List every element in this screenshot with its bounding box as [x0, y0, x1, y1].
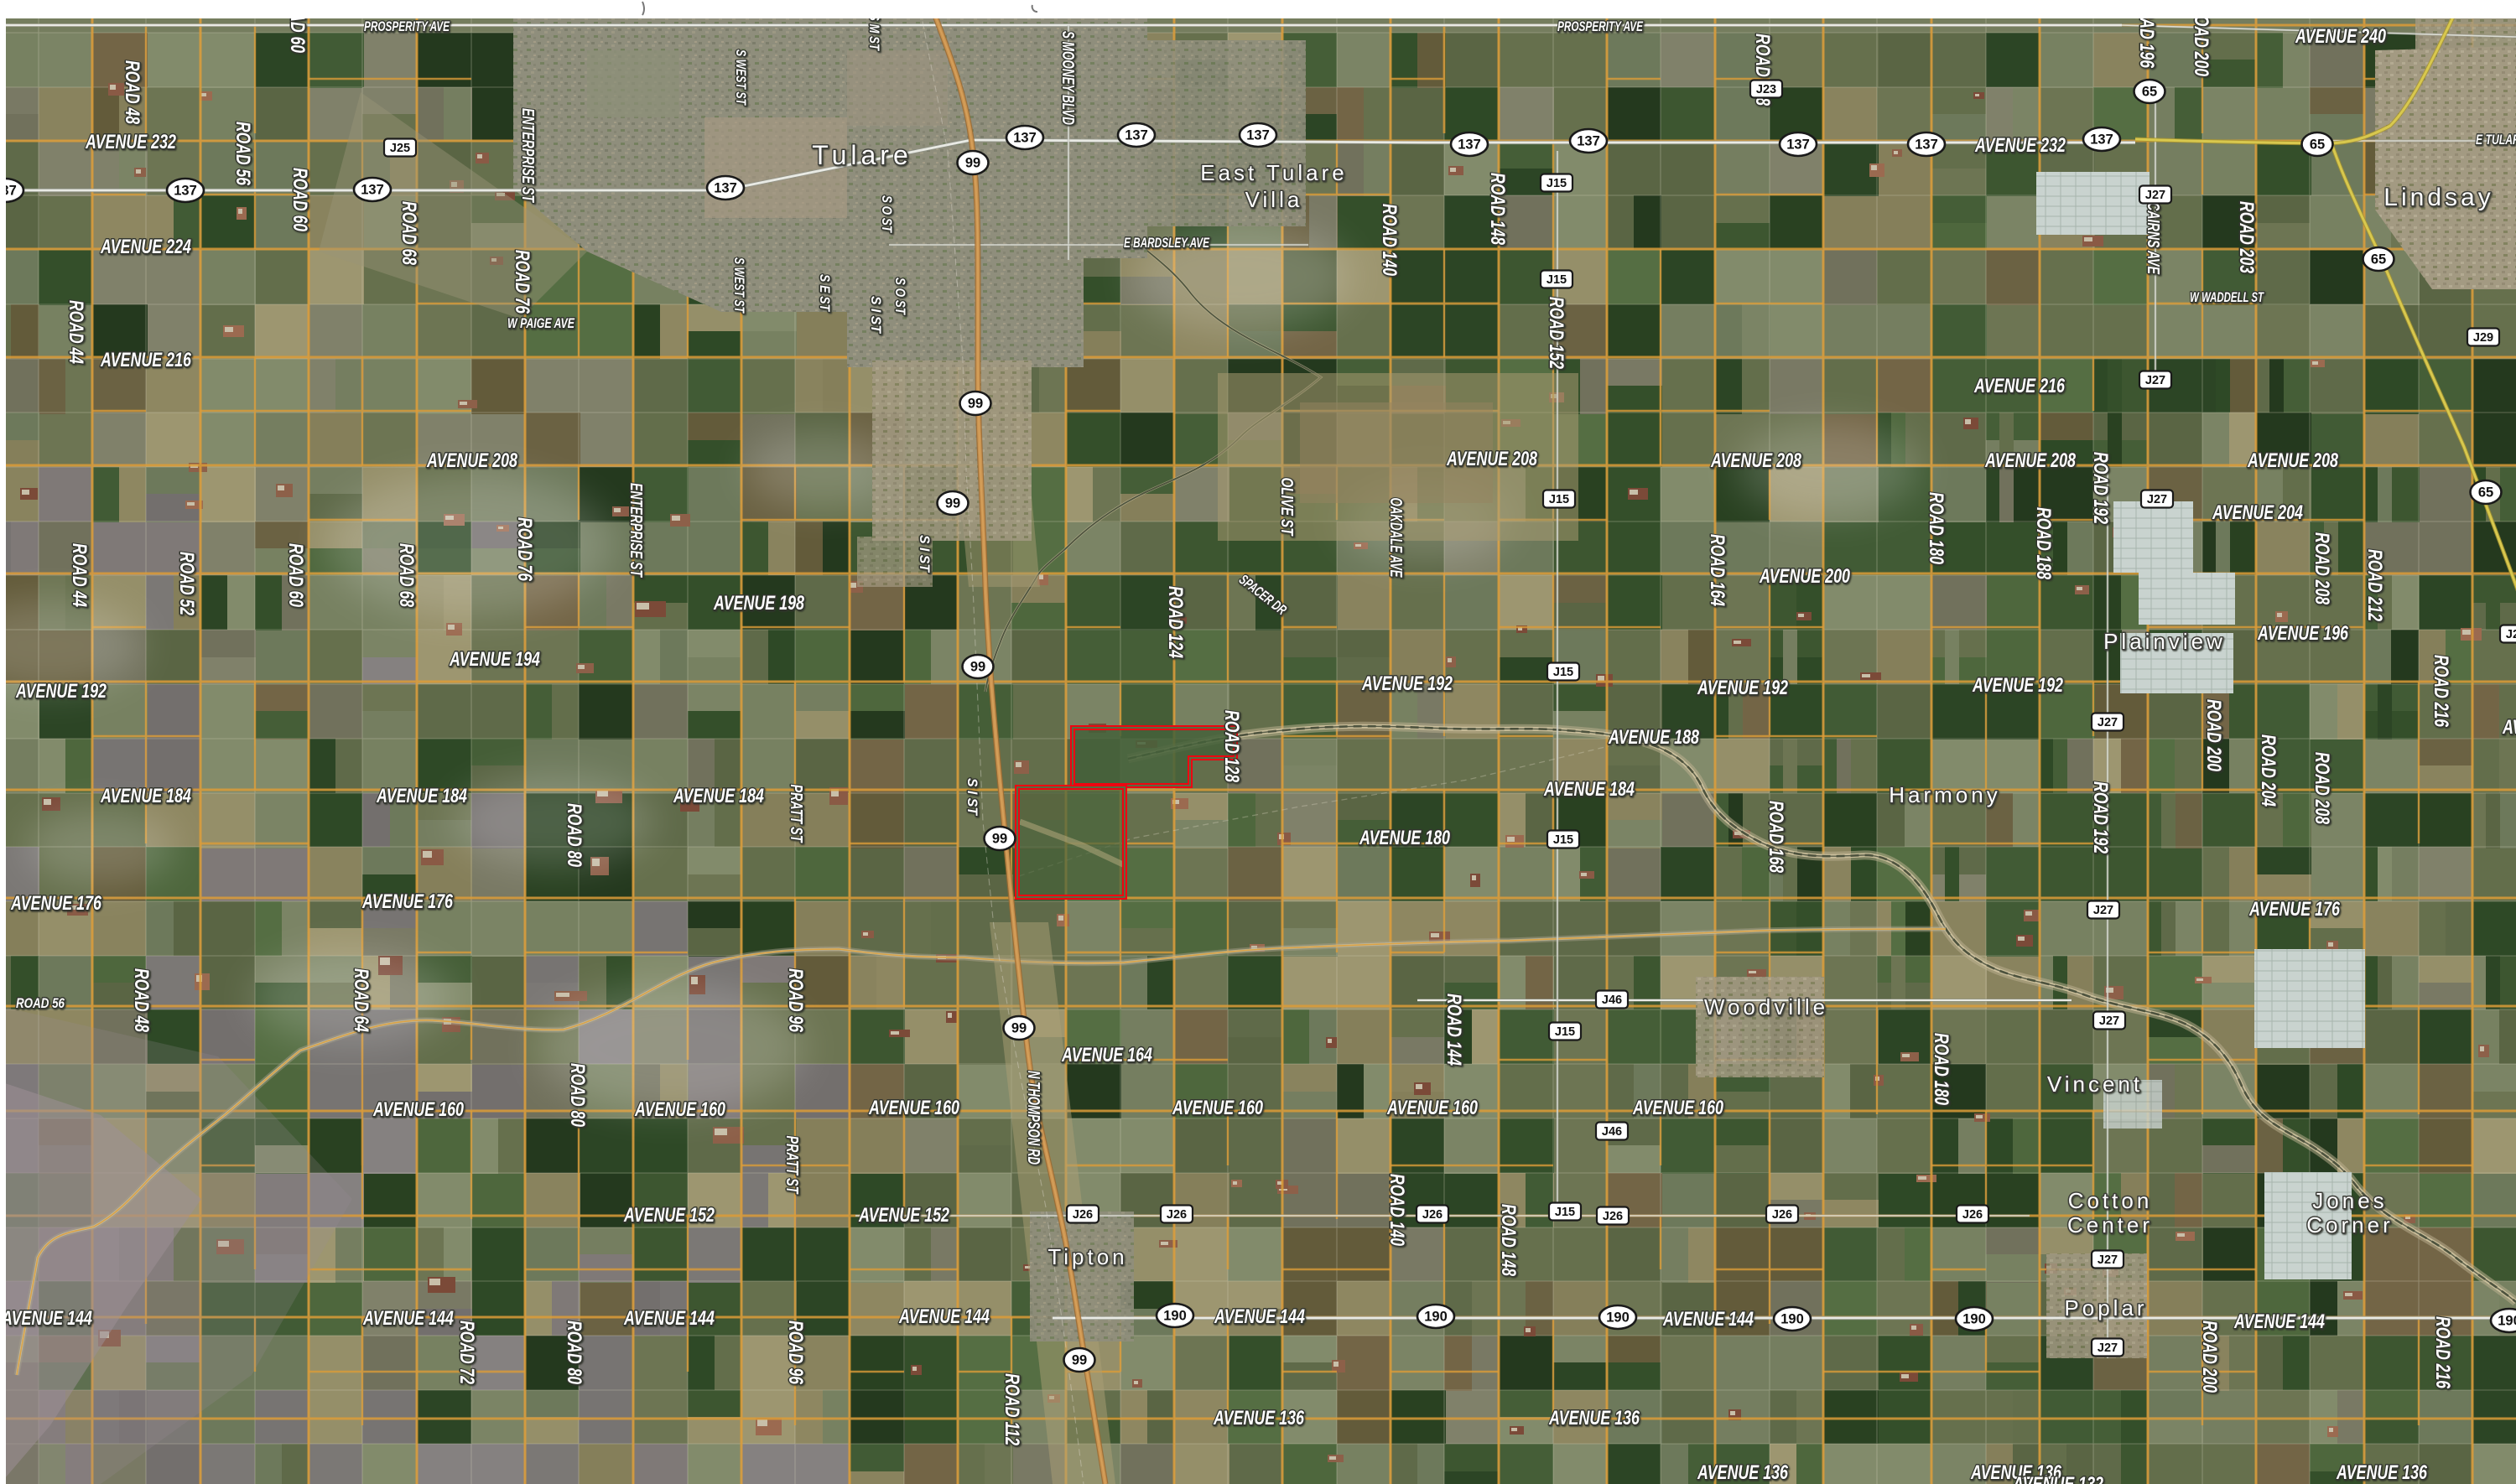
svg-text:65: 65: [2371, 252, 2386, 267]
svg-text:Vincent: Vincent: [2047, 1071, 2143, 1097]
svg-text:ROAD 180: ROAD 180: [1925, 492, 1947, 564]
svg-text:ROAD 216: ROAD 216: [2430, 655, 2452, 727]
svg-text:99: 99: [970, 660, 985, 675]
svg-text:ROAD 192: ROAD 192: [2089, 452, 2112, 524]
svg-text:ROAD 112: ROAD 112: [1001, 1373, 1023, 1445]
svg-text:AVENUE 192: AVENUE 192: [1697, 677, 1788, 699]
svg-text:J29: J29: [2473, 331, 2493, 345]
svg-text:ROAD 76: ROAD 76: [513, 517, 536, 581]
svg-text:AVENUE 176: AVENUE 176: [10, 892, 101, 915]
svg-text:137: 137: [2090, 132, 2113, 148]
svg-text:190: 190: [1163, 1309, 1187, 1324]
svg-text:Woodville: Woodville: [1704, 994, 1828, 1020]
svg-text:AVENUE 176: AVENUE 176: [361, 890, 453, 913]
svg-text:AVENUE 136: AVENUE 136: [1548, 1407, 1640, 1430]
svg-text:J27: J27: [2098, 716, 2118, 729]
svg-text:Lindsay: Lindsay: [2383, 184, 2493, 211]
svg-text:ROAD 80: ROAD 80: [566, 1063, 589, 1127]
svg-text:J26: J26: [1167, 1208, 1187, 1222]
svg-text:AVENUE 144: AVENUE 144: [898, 1305, 990, 1328]
svg-text:J26: J26: [1603, 1210, 1623, 1223]
svg-text:ROAD 192: ROAD 192: [2089, 781, 2112, 854]
svg-text:ENTERPRISE ST: ENTERPRISE ST: [518, 108, 537, 203]
svg-text:ROAD 212: ROAD 212: [2363, 549, 2386, 621]
svg-text:S WEST ST: S WEST ST: [733, 49, 749, 106]
svg-text:AVENUE 160: AVENUE 160: [634, 1098, 725, 1121]
svg-text:ROAD 48: ROAD 48: [130, 968, 153, 1032]
svg-text:CAIRNS AVE: CAIRNS AVE: [2144, 202, 2162, 274]
svg-text:ROAD 72: ROAD 72: [455, 1321, 478, 1384]
svg-text:Plainview: Plainview: [2103, 629, 2226, 654]
svg-text:65: 65: [2478, 485, 2493, 501]
svg-text:AVENUE 184: AVENUE 184: [1543, 778, 1635, 801]
svg-text:AVENUE 208: AVENUE 208: [426, 449, 517, 472]
svg-text:ROAD 200: ROAD 200: [2198, 1321, 2221, 1393]
svg-text:AVENUE 180: AVENUE 180: [1359, 827, 1450, 849]
svg-text:190: 190: [1780, 1312, 1804, 1327]
svg-text:ROAD 180: ROAD 180: [1930, 1033, 1952, 1105]
svg-text:AVENUE 194: AVENUE 194: [449, 648, 540, 671]
svg-text:Center: Center: [2067, 1212, 2153, 1238]
svg-text:AVENUE 160: AVENUE 160: [1172, 1097, 1263, 1119]
svg-text:East Tulare: East Tulare: [1200, 160, 1348, 185]
svg-text:ROAD 148: ROAD 148: [1497, 1204, 1520, 1276]
svg-text:J15: J15: [1549, 493, 1569, 506]
svg-text:AVENUE 164: AVENUE 164: [1061, 1044, 1152, 1066]
svg-text:ROAD 52: ROAD 52: [175, 552, 198, 615]
svg-text:AVENUE 224: AVENUE 224: [100, 236, 191, 258]
svg-text:S E ST: S E ST: [817, 274, 833, 312]
svg-text:Tulare: Tulare: [812, 140, 912, 170]
svg-text:S MOONEY BLVD: S MOONEY BLVD: [1058, 31, 1077, 125]
svg-text:AVENUE 192: AVENUE 192: [15, 680, 107, 703]
svg-text:AVENUE 208: AVENUE 208: [1710, 449, 1801, 472]
svg-text:137: 137: [1577, 134, 1600, 149]
svg-text:J27: J27: [2099, 1014, 2119, 1028]
svg-text:J26: J26: [1073, 1208, 1093, 1222]
svg-text:J29: J29: [2506, 628, 2516, 641]
svg-text:AVENUE 196: AVENUE 196: [2257, 622, 2348, 645]
svg-text:J27: J27: [2145, 374, 2165, 387]
svg-text:137: 137: [1458, 138, 1481, 153]
svg-text:J15: J15: [1547, 177, 1567, 190]
svg-text:ROAD 96: ROAD 96: [784, 1321, 807, 1384]
svg-text:AVENUE 160: AVENUE 160: [372, 1098, 464, 1121]
svg-text:AVENUE 192: AVENUE 192: [1972, 674, 2063, 697]
svg-text:Jones: Jones: [2312, 1188, 2387, 1213]
svg-text:ROAD 140: ROAD 140: [1378, 204, 1401, 276]
svg-text:99: 99: [968, 397, 983, 412]
svg-text:ROAD 68: ROAD 68: [395, 543, 418, 607]
svg-text:Corner: Corner: [2306, 1212, 2393, 1238]
svg-text:Poplar: Poplar: [2064, 1295, 2147, 1321]
svg-text:PROSPERITY AVE: PROSPERITY AVE: [364, 18, 450, 34]
svg-text:W PAIGE AVE: W PAIGE AVE: [507, 315, 574, 331]
svg-text:AVENUE 160: AVENUE 160: [1386, 1097, 1478, 1119]
svg-text:S O ST: S O ST: [892, 278, 908, 315]
svg-text:AVENUE 216: AVENUE 216: [100, 349, 191, 371]
svg-text:99: 99: [1011, 1021, 1027, 1036]
svg-text:ROAD 76: ROAD 76: [511, 250, 533, 314]
svg-text:S M ST: S M ST: [866, 13, 882, 51]
svg-text:E BARDSLEY AVE: E BARDSLEY AVE: [1124, 235, 1209, 251]
svg-text:OLIVE ST: OLIVE ST: [1277, 478, 1296, 537]
svg-text:N THOMPSON RD: N THOMPSON RD: [1024, 1071, 1042, 1165]
svg-text:AVENUE 188: AVENUE 188: [1608, 726, 1699, 749]
svg-text:PRATT ST: PRATT ST: [787, 785, 805, 843]
svg-text:AVENUE 208: AVENUE 208: [1984, 449, 2076, 472]
svg-text:S I ST: S I ST: [964, 778, 980, 817]
svg-text:AVENUE 184: AVENUE 184: [673, 785, 764, 807]
svg-text:AVENUE 216: AVENUE 216: [1973, 375, 2065, 397]
svg-text:ROAD 80: ROAD 80: [563, 1321, 585, 1384]
svg-text:190: 190: [1962, 1312, 1986, 1327]
svg-text:190: 190: [2498, 1314, 2516, 1329]
svg-text:S WEST ST: S WEST ST: [731, 257, 747, 314]
svg-text:PROSPERITY AVE: PROSPERITY AVE: [1557, 18, 1643, 34]
svg-text:ROAD 216: ROAD 216: [2431, 1316, 2454, 1388]
svg-text:AVENUE 144: AVENUE 144: [1662, 1308, 1754, 1331]
svg-text:PRATT ST: PRATT ST: [782, 1136, 801, 1195]
svg-text:ROAD 56: ROAD 56: [16, 995, 65, 1011]
svg-text:ROAD 96: ROAD 96: [784, 968, 807, 1032]
svg-text:ROAD 204: ROAD 204: [2257, 734, 2279, 807]
svg-text:AVENUE 132: AVENUE 132: [2012, 1473, 2103, 1484]
svg-text:137: 137: [1246, 128, 1270, 143]
svg-text:J26: J26: [1422, 1208, 1443, 1222]
svg-text:ROAD 168: ROAD 168: [1765, 801, 1787, 873]
svg-text:190: 190: [1606, 1310, 1630, 1326]
svg-text:AVENUE 144: AVENUE 144: [2233, 1310, 2325, 1333]
svg-text:J23: J23: [1756, 83, 1776, 96]
svg-text:99: 99: [1072, 1353, 1087, 1368]
svg-text:ROAD 152: ROAD 152: [1545, 297, 1567, 369]
svg-text:137: 137: [714, 181, 737, 196]
svg-text:OAKDALE AVE: OAKDALE AVE: [1386, 498, 1405, 578]
svg-text:J27: J27: [2093, 904, 2113, 917]
svg-text:AVENUE 136: AVENUE 136: [2336, 1461, 2427, 1484]
svg-text:J46: J46: [1602, 1125, 1622, 1139]
svg-text:AVENUE 208: AVENUE 208: [1446, 448, 1537, 470]
svg-text:ROAD 80: ROAD 80: [563, 803, 585, 867]
svg-text:J27: J27: [2098, 1253, 2118, 1267]
svg-text:ROAD 148: ROAD 148: [1486, 173, 1509, 245]
svg-text:AVENUE 198: AVENUE 198: [713, 592, 804, 615]
svg-text:J26: J26: [1962, 1208, 1983, 1222]
svg-text:ROAD 144: ROAD 144: [1443, 994, 1465, 1066]
svg-text:137: 137: [1013, 131, 1037, 146]
svg-text:J27: J27: [2098, 1341, 2118, 1355]
svg-text:AVENUE 232: AVENUE 232: [1974, 134, 2066, 157]
svg-text:137: 137: [174, 184, 197, 199]
svg-text:ROAD 44: ROAD 44: [68, 543, 91, 607]
svg-text:AVENUE 152: AVENUE 152: [858, 1204, 949, 1227]
svg-text:J46: J46: [1602, 994, 1622, 1007]
svg-text:J15: J15: [1547, 273, 1567, 287]
svg-text:ROAD 60: ROAD 60: [284, 543, 307, 607]
svg-text:ROAD 124: ROAD 124: [1164, 586, 1187, 658]
svg-text:190: 190: [1424, 1310, 1448, 1325]
svg-text:AVENUE 232: AVENUE 232: [85, 131, 176, 153]
svg-text:65: 65: [2310, 138, 2325, 153]
svg-text:AVENUE 192: AVENUE 192: [1361, 672, 1453, 695]
svg-text:ROAD 203: ROAD 203: [2235, 201, 2258, 273]
svg-text:99: 99: [945, 496, 960, 511]
svg-text:J15: J15: [1553, 833, 1573, 847]
svg-text:ROAD 200: ROAD 200: [2202, 699, 2225, 771]
svg-text:AVENUE 144: AVENUE 144: [1, 1307, 92, 1330]
svg-text:Tipton: Tipton: [1047, 1244, 1127, 1269]
svg-text:J27: J27: [2145, 189, 2165, 202]
svg-text:ROAD 140: ROAD 140: [1385, 1174, 1408, 1246]
svg-text:Cotton: Cotton: [2068, 1188, 2153, 1213]
svg-text:AVENUE 144: AVENUE 144: [362, 1307, 454, 1330]
svg-text:ROAD 128: ROAD 128: [1220, 710, 1243, 782]
svg-text:AVENUE 144: AVENUE 144: [1214, 1305, 1305, 1328]
svg-text:J27: J27: [2147, 493, 2167, 506]
svg-text:AVENUE 204: AVENUE 204: [2212, 501, 2303, 524]
svg-text:ROAD 60: ROAD 60: [289, 168, 311, 231]
svg-text:AVENUE 200: AVENUE 200: [1759, 565, 1850, 588]
svg-text:AVENUE 188: AVENUE 188: [2502, 716, 2516, 739]
svg-text:ROAD 48: ROAD 48: [121, 60, 143, 124]
svg-text:J15: J15: [1553, 666, 1573, 679]
svg-text:S I ST: S I ST: [917, 535, 933, 573]
svg-text:W WADDELL ST: W WADDELL ST: [2190, 289, 2264, 305]
svg-text:E TULARE AVE: E TULARE AVE: [2476, 132, 2516, 148]
svg-text:ENTERPRISE ST: ENTERPRISE ST: [626, 483, 645, 578]
svg-text:J15: J15: [1555, 1206, 1575, 1219]
svg-text:ROAD 188: ROAD 188: [2032, 507, 2055, 579]
svg-text:ROAD 56: ROAD 56: [231, 122, 254, 185]
svg-text:J26: J26: [1772, 1208, 1792, 1222]
svg-text:Harmony: Harmony: [1889, 782, 2000, 807]
svg-text:AVENUE 152: AVENUE 152: [623, 1204, 715, 1227]
svg-text:137: 137: [1786, 138, 1810, 153]
svg-text:99: 99: [992, 832, 1007, 847]
svg-text:137: 137: [1915, 138, 1938, 153]
svg-text:S I ST: S I ST: [868, 296, 884, 335]
svg-text:AVENUE 184: AVENUE 184: [376, 785, 467, 807]
svg-text:99: 99: [965, 156, 980, 171]
svg-text:AVENUE 136: AVENUE 136: [1697, 1461, 1788, 1484]
svg-text:AVENUE 160: AVENUE 160: [1632, 1097, 1723, 1119]
svg-text:137: 137: [361, 183, 384, 198]
svg-text:J15: J15: [1555, 1025, 1575, 1039]
svg-text:ROAD 208: ROAD 208: [2311, 752, 2333, 824]
svg-text:AVENUE 208: AVENUE 208: [2247, 449, 2338, 472]
svg-text:J25: J25: [390, 142, 410, 155]
svg-text:ROAD 64: ROAD 64: [350, 968, 372, 1032]
svg-text:AVENUE 240: AVENUE 240: [2295, 25, 2386, 48]
svg-text:137: 137: [1125, 128, 1148, 143]
svg-text:AVENUE 160: AVENUE 160: [868, 1097, 959, 1119]
svg-text:ROAD 208: ROAD 208: [2311, 532, 2333, 604]
svg-text:ROAD 44: ROAD 44: [65, 300, 87, 364]
svg-text:Villa: Villa: [1245, 187, 1303, 212]
svg-text:S O ST: S O ST: [879, 195, 895, 233]
svg-text:ROAD 164: ROAD 164: [1706, 534, 1728, 606]
svg-text:AVENUE 184: AVENUE 184: [100, 785, 191, 807]
svg-text:AVENUE 176: AVENUE 176: [2248, 898, 2340, 921]
svg-text:AVENUE 136: AVENUE 136: [1213, 1407, 1304, 1430]
svg-text:ROAD 68: ROAD 68: [398, 201, 420, 265]
svg-text:65: 65: [2142, 85, 2157, 100]
svg-text:AVENUE 144: AVENUE 144: [623, 1307, 715, 1330]
